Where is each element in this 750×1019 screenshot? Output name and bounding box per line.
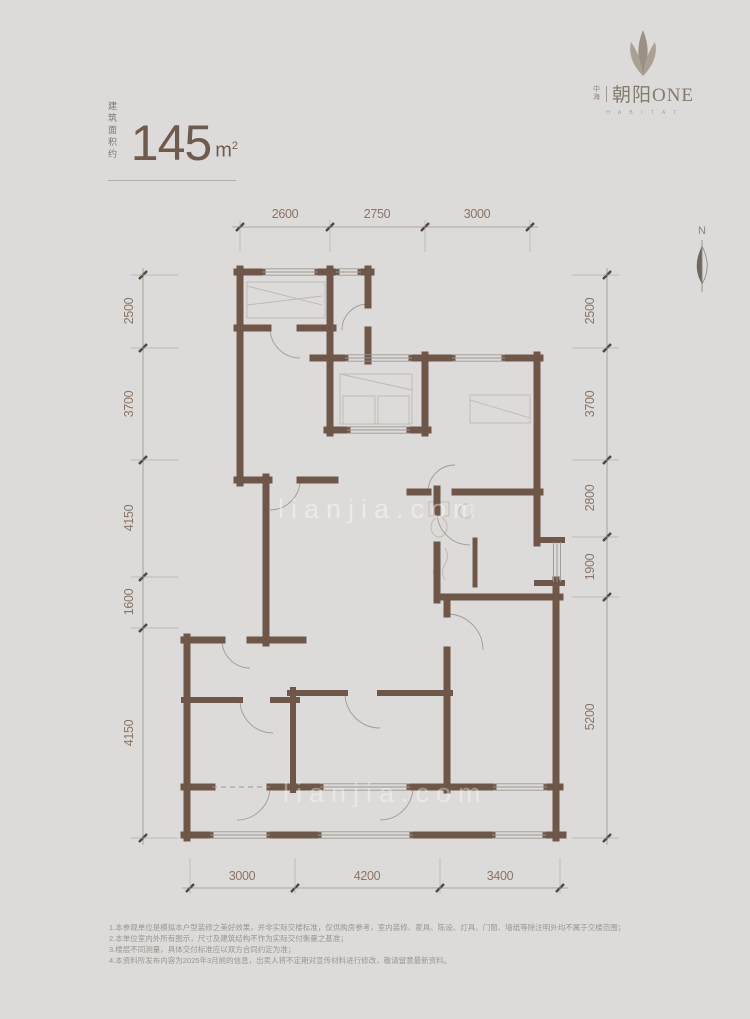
disclaimer-line: 4.本资料所发布内容为2025年3月前的信息，出卖人将不定期对宣传材料进行修改，… [109,955,669,966]
dimension-chain-top: 2600 2750 3000 [232,207,538,252]
dim-left-3: 1600 [122,588,136,615]
watermark: lianjia.com lianjia.com [278,494,488,808]
dim-top-2: 3000 [464,207,491,221]
dim-right-2: 2800 [583,484,597,511]
fixture-sketches [247,282,530,580]
dim-left-2: 4150 [122,504,136,531]
dim-bottom-0: 3000 [229,869,256,883]
watermark-lower: lianjia.com [283,778,488,808]
dim-right-1: 3700 [583,390,597,417]
dimension-chain-right: 2500 3700 2800 1900 5200 [572,268,619,845]
dim-left-4: 4150 [122,719,136,746]
dim-right-0: 2500 [583,297,597,324]
dim-top-0: 2600 [272,207,299,221]
floorplan-drawing: 2600 2750 3000 3000 4200 3400 [0,0,750,1019]
disclaimer-line: 2.本单位室内外所有图示，尺寸及建筑结构不作为实际交付衡量之基准； [109,933,669,944]
dimension-chain-bottom: 3000 4200 3400 [182,858,568,894]
dim-left-1: 3700 [122,390,136,417]
watermark-upper: lianjia.com [278,494,483,524]
dim-left-0: 2500 [122,297,136,324]
compass-needle-dark [697,246,702,284]
dim-right-3: 1900 [583,553,597,580]
disclaimer-line: 3.楼层不同测量，具体交付标准应以双方合同约定为准； [109,944,669,955]
dim-top-1: 2750 [364,207,391,221]
dimension-chain-left: 2500 3700 4150 1600 4150 [122,268,178,845]
compass-needle-light [702,246,707,284]
north-compass: N [697,225,708,292]
floorplan-page: 中 海 朝阳ONE H A B I T A T 建 筑 面积约 145 m2 [0,0,750,1019]
dim-bottom-2: 3400 [487,869,514,883]
north-label: N [698,225,706,237]
disclaimer-notes: 1.本参观单位是模拟本户型装修之美好效果，并非实际交楼标准，仅供购房参考，室内装… [109,922,669,966]
dim-right-4: 5200 [583,703,597,730]
disclaimer-line: 1.本参观单位是模拟本户型装修之美好效果，并非实际交楼标准，仅供购房参考，室内装… [109,922,669,933]
dim-bottom-1: 4200 [354,869,381,883]
